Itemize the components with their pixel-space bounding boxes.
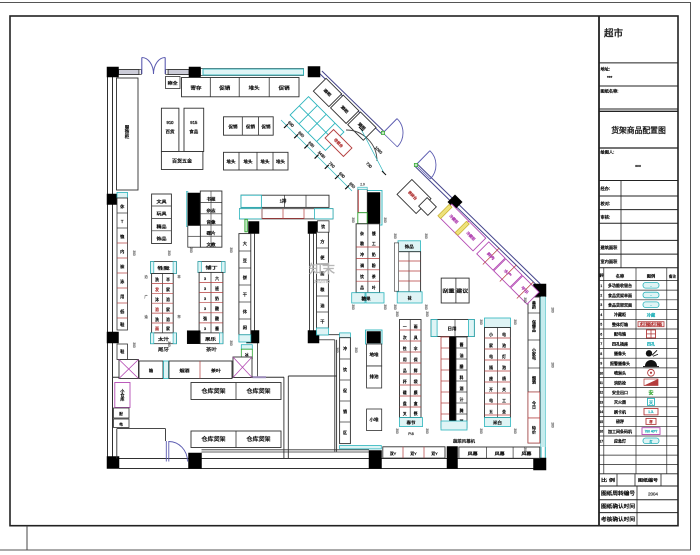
svg-text:奶: 奶 — [372, 252, 376, 257]
svg-text:茶: 茶 — [372, 274, 376, 279]
svg-text:名称: 名称 — [616, 273, 624, 280]
svg-text:安全出口: 安全出口 — [612, 389, 628, 395]
svg-text:促销: 促销 — [229, 123, 238, 129]
svg-text:饮: 饮 — [321, 224, 325, 229]
svg-text:300: 300 — [351, 217, 355, 223]
svg-text:910: 910 — [167, 120, 175, 125]
svg-text:四孔插座: 四孔插座 — [612, 340, 628, 346]
svg-text:玩具: 玩具 — [157, 210, 167, 216]
svg-text:家: 家 — [489, 343, 493, 348]
svg-text:书报: 书报 — [207, 196, 216, 201]
svg-text:文具: 文具 — [157, 198, 167, 204]
svg-text:馒: 馒 — [372, 231, 376, 236]
svg-text:伞: 伞 — [414, 346, 418, 351]
svg-text:灭: 灭 — [649, 400, 653, 405]
svg-text:堆头: 堆头 — [276, 158, 285, 164]
svg-text:喷淋头: 喷淋头 — [614, 370, 626, 376]
svg-text:配电箱: 配电箱 — [614, 331, 626, 337]
svg-text:刷卡机: 刷卡机 — [614, 409, 626, 415]
svg-text:浴: 浴 — [155, 307, 159, 312]
svg-text:洗: 洗 — [155, 317, 159, 322]
svg-text:灯: 灯 — [502, 354, 506, 359]
svg-text:百货: 百货 — [166, 128, 175, 135]
svg-text:发: 发 — [155, 287, 159, 292]
svg-text:食品货架双面: 食品货架双面 — [608, 302, 632, 308]
svg-text:堆头: 堆头 — [244, 158, 253, 164]
svg-text:饮: 饮 — [360, 274, 364, 279]
svg-text:灯: 灯 — [649, 438, 652, 443]
svg-text:··: ·· — [650, 284, 652, 288]
svg-text:3: 3 — [204, 277, 206, 281]
svg-text:300: 300 — [229, 247, 233, 253]
svg-text:具: 具 — [414, 335, 418, 340]
svg-text:300: 300 — [167, 250, 171, 256]
svg-text:仓库货架: 仓库货架 — [247, 387, 272, 395]
svg-text:食品: 食品 — [189, 128, 198, 135]
svg-text:应急灯: 应急灯 — [614, 438, 626, 444]
svg-text:8: 8 — [600, 352, 602, 356]
svg-text:价: 价 — [532, 429, 536, 434]
svg-text:300: 300 — [393, 304, 397, 310]
svg-text:小堆: 小堆 — [370, 417, 379, 422]
svg-text:酸: 酸 — [215, 306, 219, 311]
svg-text:豆: 豆 — [243, 258, 247, 263]
svg-text:300: 300 — [395, 311, 399, 317]
svg-text:2004: 2004 — [648, 492, 659, 497]
svg-text:堆头: 堆头 — [249, 85, 261, 92]
svg-text:冷藏: 冷藏 — [647, 311, 656, 318]
svg-text:促销: 促销 — [246, 123, 255, 129]
svg-text:烟酒: 烟酒 — [180, 367, 190, 374]
svg-text:建议: 建议 — [456, 288, 468, 295]
svg-text:1排: 1排 — [280, 198, 287, 205]
svg-text:鲜: 鲜 — [414, 368, 418, 373]
svg-text:班: 班 — [215, 286, 219, 291]
svg-text:配: 配 — [119, 411, 123, 416]
svg-text:日: 日 — [532, 404, 536, 409]
svg-text:300: 300 — [479, 319, 483, 325]
svg-text:znzmo: znzmo — [314, 279, 330, 285]
svg-text:780 40*7: 780 40*7 — [645, 430, 658, 434]
svg-text:杂: 杂 — [360, 231, 364, 236]
svg-text:音像: 音像 — [207, 219, 216, 224]
svg-text:整体灯箱: 整体灯箱 — [612, 321, 628, 327]
svg-text:泡: 泡 — [502, 365, 506, 370]
svg-text:饼: 饼 — [243, 274, 247, 281]
svg-text:图纸周转编号: 图纸周转编号 — [601, 489, 635, 497]
svg-text:300: 300 — [424, 304, 428, 310]
svg-text:摄像头: 摄像头 — [614, 350, 626, 356]
svg-text:电: 电 — [119, 422, 123, 427]
svg-text:图例: 图例 — [647, 273, 655, 280]
svg-text:2.9: 2.9 — [360, 183, 365, 187]
svg-text:图纸编号: 图纸编号 — [638, 477, 658, 484]
svg-text:内: 内 — [120, 248, 124, 255]
svg-text:300: 300 — [132, 250, 136, 256]
svg-text:次: 次 — [403, 335, 407, 340]
svg-text:10: 10 — [600, 371, 604, 375]
svg-text:袜: 袜 — [408, 296, 412, 301]
svg-text:区: 区 — [343, 431, 347, 435]
svg-text:强: 强 — [203, 316, 207, 321]
svg-text:池: 池 — [502, 343, 506, 348]
svg-text:300: 300 — [354, 347, 358, 353]
svg-text:用: 用 — [403, 357, 407, 362]
svg-text:货架商品配置图: 货架商品配置图 — [611, 125, 666, 135]
svg-text:刮重: 刮重 — [443, 288, 455, 295]
svg-text:300: 300 — [229, 340, 233, 346]
svg-text:多功能收银台: 多功能收银台 — [608, 282, 632, 288]
svg-text:泊: 泊 — [144, 274, 147, 279]
svg-text:饰品: 饰品 — [157, 235, 167, 241]
svg-text:17: 17 — [600, 439, 604, 443]
svg-text:300: 300 — [132, 342, 136, 348]
svg-text:酒: 酒 — [460, 386, 464, 391]
svg-text:··: ·· — [650, 294, 652, 298]
svg-text:报警摄像头: 报警摄像头 — [610, 360, 630, 366]
svg-text:插: 插 — [489, 365, 493, 370]
svg-text:地堆: 地堆 — [370, 352, 379, 357]
svg-text:地址:: 地址: — [601, 66, 611, 72]
svg-text:5: 5 — [600, 323, 602, 327]
svg-text:奶: 奶 — [215, 296, 219, 301]
svg-text:雨: 雨 — [414, 324, 418, 329]
svg-text:杂志: 杂志 — [207, 208, 216, 213]
svg-text:仓库货架: 仓库货架 — [202, 435, 227, 443]
svg-text:260: 260 — [551, 422, 555, 428]
svg-text:300: 300 — [335, 347, 339, 353]
svg-text:饮: 饮 — [343, 367, 347, 372]
svg-text:文教: 文教 — [207, 242, 216, 247]
svg-text:消防栓: 消防栓 — [614, 379, 626, 385]
svg-text:电: 电 — [532, 355, 536, 360]
svg-text:室内面积: 室内面积 — [601, 258, 618, 265]
svg-text:日用: 日用 — [448, 326, 457, 331]
svg-text:百货五金: 百货五金 — [172, 158, 193, 165]
svg-text:袋: 袋 — [414, 379, 418, 384]
svg-text:工: 工 — [372, 242, 376, 246]
svg-text:春节: 春节 — [407, 420, 416, 425]
svg-text:叉: 叉 — [403, 412, 407, 416]
svg-text:图纸名称:: 图纸名称: — [601, 88, 619, 95]
svg-text:家: 家 — [166, 287, 170, 292]
svg-text:冷藏柜: 冷藏柜 — [614, 311, 626, 317]
svg-text:3: 3 — [204, 287, 206, 291]
svg-text:品: 品 — [360, 285, 364, 290]
svg-text:叶: 叶 — [372, 285, 376, 290]
svg-text:双Y: 双Y — [390, 452, 397, 456]
svg-text:3: 3 — [204, 307, 206, 311]
svg-text:300: 300 — [383, 217, 387, 223]
svg-text:品: 品 — [532, 327, 536, 332]
svg-text:粮: 粮 — [360, 241, 364, 246]
svg-text:2: 2 — [600, 294, 602, 298]
svg-text:盘: 盘 — [403, 401, 407, 406]
svg-text:灭火器: 灭火器 — [614, 400, 626, 405]
svg-text:糖果: 糖果 — [362, 296, 371, 301]
svg-text:冰: 冰 — [245, 352, 249, 357]
svg-text:料: 料 — [460, 375, 464, 380]
svg-text:堆头: 堆头 — [261, 158, 270, 164]
svg-text:双Y: 双Y — [431, 452, 438, 456]
svg-text:绘图人:: 绘图人: — [601, 149, 615, 156]
svg-text:促销: 促销 — [262, 123, 271, 129]
svg-text:12: 12 — [600, 391, 604, 395]
svg-text:11: 11 — [600, 381, 604, 385]
svg-text:300: 300 — [479, 428, 483, 434]
svg-text:品: 品 — [403, 368, 407, 373]
svg-text:灯箱灯箱: 灯箱灯箱 — [640, 322, 663, 327]
svg-text:***: *** — [635, 165, 641, 171]
svg-text:电: 电 — [502, 332, 506, 337]
svg-text:精品: 精品 — [157, 223, 167, 229]
svg-text:浴: 浴 — [166, 317, 170, 322]
svg-text:300: 300 — [395, 428, 399, 434]
svg-text:300: 300 — [351, 304, 355, 310]
svg-text:超市: 超市 — [604, 28, 624, 40]
svg-text:安: 安 — [648, 390, 653, 397]
svg-text:碟片: 碟片 — [207, 231, 216, 236]
svg-text:鞋: 鞋 — [120, 348, 124, 354]
svg-text:915: 915 — [190, 120, 198, 125]
svg-text:备注: 备注 — [669, 274, 677, 279]
svg-text:300: 300 — [425, 311, 429, 317]
svg-text:六: 六 — [215, 276, 219, 281]
svg-text:浴: 浴 — [166, 297, 170, 302]
svg-text:筷: 筷 — [414, 411, 418, 416]
svg-text:果乐: 果乐 — [205, 337, 216, 342]
svg-text:知末: 知末 — [309, 262, 335, 276]
svg-text:3: 3 — [600, 303, 602, 307]
svg-text:调: 调 — [360, 263, 364, 268]
svg-text:膜: 膜 — [414, 390, 418, 395]
svg-text:铺丁: 铺丁 — [206, 265, 218, 270]
svg-text:牲陇: 牲陇 — [158, 266, 170, 271]
svg-text:比 例: 比 例 — [601, 477, 615, 484]
svg-text:销: 销 — [343, 409, 347, 414]
svg-text:盒: 盒 — [414, 401, 418, 406]
svg-text:碟: 碟 — [403, 390, 407, 395]
svg-text:寄存: 寄存 — [191, 85, 203, 92]
svg-text:堆头: 堆头 — [227, 158, 236, 164]
svg-text:洗: 洗 — [155, 277, 159, 282]
svg-text:加工间条码机: 加工间条码机 — [608, 428, 632, 434]
svg-text:促销: 促销 — [279, 85, 291, 92]
svg-text:300: 300 — [393, 233, 397, 239]
svg-text:蔬菜风幕机: 蔬菜风幕机 — [453, 439, 475, 444]
svg-text:260: 260 — [551, 362, 555, 368]
svg-text:考核确认时间: 考核确认时间 — [601, 515, 635, 523]
svg-text:建筑面积: 建筑面积 — [601, 244, 618, 251]
svg-text:1.3.: 1.3. — [648, 410, 654, 414]
svg-text:编号: 编号 — [599, 273, 604, 278]
svg-text:15: 15 — [600, 420, 604, 424]
svg-text:双Y: 双Y — [410, 452, 417, 456]
svg-text:审核:: 审核: — [601, 213, 611, 220]
svg-text:闲: 闲 — [243, 324, 247, 331]
svg-text:6: 6 — [600, 332, 602, 336]
svg-text:13: 13 — [600, 400, 604, 404]
svg-text:校对:: 校对: — [601, 200, 611, 207]
svg-text:仓库货架: 仓库货架 — [247, 435, 272, 443]
svg-text:一: 一 — [403, 325, 407, 329]
svg-text:300: 300 — [383, 304, 387, 310]
svg-text:300: 300 — [424, 233, 428, 239]
svg-text:***: *** — [607, 75, 613, 80]
svg-text:小: 小 — [489, 332, 493, 337]
svg-text:300: 300 — [523, 447, 527, 453]
svg-text:··: ·· — [650, 303, 652, 307]
svg-text:饰品: 饰品 — [405, 244, 414, 249]
svg-text:半: 半 — [166, 277, 170, 282]
svg-text:经办:: 经办: — [601, 185, 611, 192]
svg-text:冲: 冲 — [360, 252, 364, 257]
svg-text:4: 4 — [600, 313, 602, 317]
svg-text:家: 家 — [166, 307, 170, 312]
svg-text:杯: 杯 — [403, 379, 407, 384]
svg-text:线: 线 — [502, 376, 506, 381]
svg-text:油: 油 — [460, 353, 464, 358]
svg-text:库: 库 — [120, 395, 124, 401]
svg-text:16: 16 — [600, 430, 604, 434]
svg-text:开: 开 — [489, 388, 493, 392]
svg-text:性: 性 — [403, 346, 407, 351]
svg-text:保: 保 — [414, 357, 418, 362]
svg-text:方: 方 — [320, 238, 324, 245]
svg-text:称全: 称全 — [168, 81, 178, 86]
svg-text:茶叶: 茶叶 — [211, 367, 222, 374]
svg-text:油: 油 — [320, 302, 324, 309]
svg-text:14: 14 — [600, 410, 604, 414]
svg-text:1: 1 — [600, 284, 602, 288]
svg-text:醋: 醋 — [460, 364, 464, 369]
svg-text:促: 促 — [343, 388, 347, 393]
svg-text:米白: 米白 — [493, 420, 502, 425]
svg-text:300: 300 — [189, 247, 193, 253]
svg-text:260: 260 — [551, 307, 555, 313]
svg-text:酱: 酱 — [460, 342, 464, 347]
svg-text:仓库货架: 仓库货架 — [202, 387, 227, 395]
svg-text:300: 300 — [513, 319, 517, 325]
svg-text:粉: 粉 — [372, 263, 376, 268]
svg-text:9: 9 — [600, 362, 602, 366]
svg-text:面: 面 — [155, 326, 159, 331]
svg-text:图纸确认时间: 图纸确认时间 — [601, 502, 635, 510]
svg-text:300: 300 — [523, 297, 527, 303]
svg-text:酱: 酱 — [215, 326, 219, 331]
svg-text:7: 7 — [600, 342, 602, 346]
svg-text:300: 300 — [167, 341, 171, 347]
svg-text:沐: 沐 — [155, 297, 159, 302]
svg-text:T: T — [121, 219, 124, 224]
svg-text:大: 大 — [243, 240, 247, 247]
svg-text:300: 300 — [425, 428, 429, 434]
svg-text:柜: 柜 — [125, 133, 130, 140]
svg-text:3: 3 — [204, 297, 206, 301]
svg-text:腌: 腌 — [460, 408, 464, 413]
svg-text:300: 300 — [513, 428, 517, 434]
svg-text:茶叶: 茶叶 — [206, 346, 218, 353]
svg-text:酒: 酒 — [532, 379, 536, 384]
svg-text:关: 关 — [502, 387, 506, 392]
svg-text:金: 金 — [502, 409, 506, 414]
svg-text:3: 3 — [204, 327, 206, 331]
svg-text:食品货架单面: 食品货架单面 — [608, 292, 632, 298]
svg-text:风幕: 风幕 — [468, 451, 478, 456]
svg-text:药: 药 — [532, 304, 536, 309]
svg-text:汁: 汁 — [460, 397, 464, 402]
svg-text:工: 工 — [502, 399, 506, 403]
svg-text:P.8: P.8 — [408, 431, 414, 436]
svg-text:磅秤: 磅秤 — [616, 418, 624, 424]
svg-text:酸: 酸 — [215, 316, 219, 321]
svg-text:家: 家 — [166, 326, 170, 331]
svg-text:五: 五 — [489, 410, 493, 414]
svg-text:电: 电 — [489, 354, 493, 359]
svg-text:座: 座 — [489, 376, 493, 381]
svg-text:排池: 排池 — [370, 374, 379, 379]
svg-text:电: 电 — [489, 398, 493, 403]
svg-text:四孔: 四孔 — [647, 341, 655, 347]
svg-text:促销: 促销 — [219, 85, 231, 92]
svg-text:风幕: 风幕 — [495, 451, 505, 456]
svg-text:箱: 箱 — [149, 367, 153, 374]
svg-text:冲: 冲 — [343, 346, 347, 351]
